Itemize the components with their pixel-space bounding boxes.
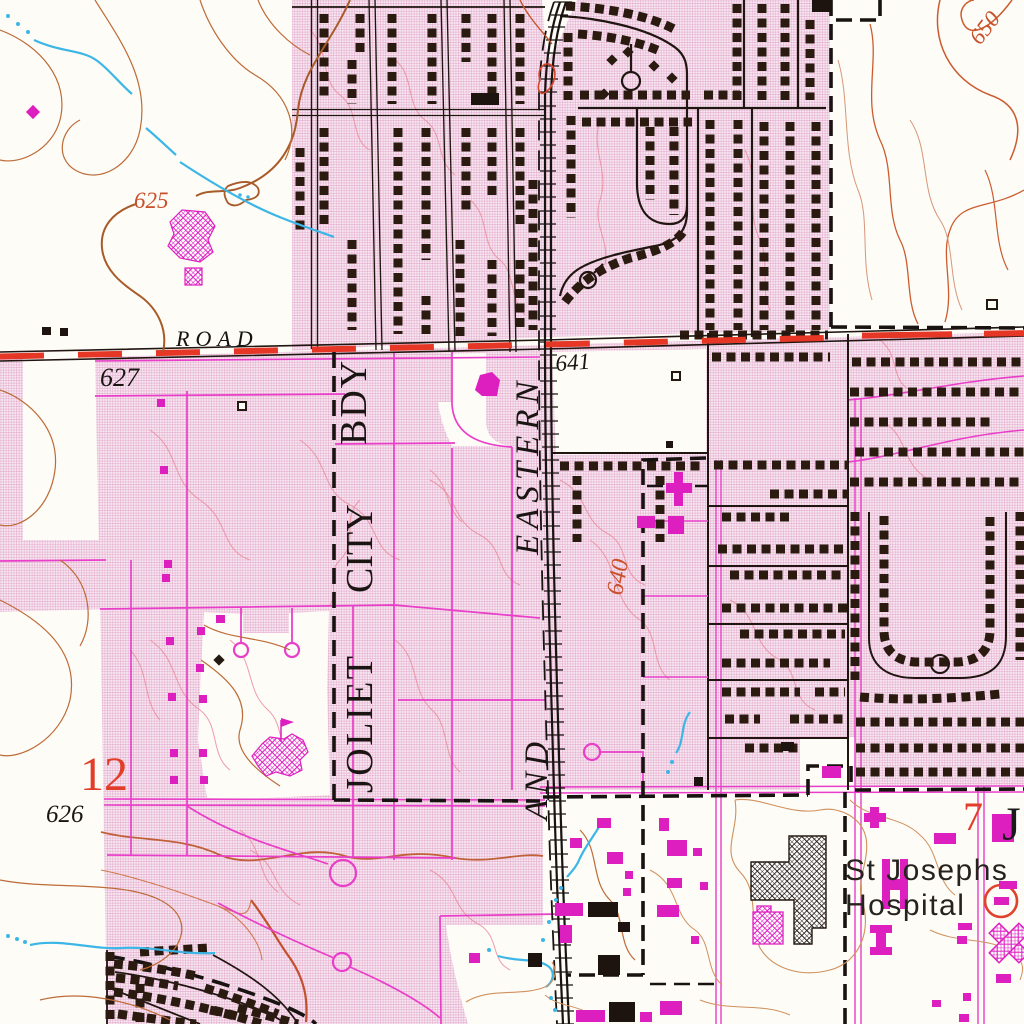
svg-text:ROAD: ROAD bbox=[175, 326, 259, 351]
svg-text:7: 7 bbox=[963, 794, 983, 839]
svg-text:Hospital: Hospital bbox=[845, 889, 965, 922]
svg-text:626: 626 bbox=[46, 801, 84, 828]
svg-text:641: 641 bbox=[555, 349, 591, 376]
svg-text:BDY: BDY bbox=[333, 359, 375, 445]
svg-text:627: 627 bbox=[100, 363, 140, 392]
svg-text:St Josephs: St Josephs bbox=[845, 854, 1008, 887]
svg-text:AND: AND bbox=[519, 736, 555, 822]
svg-text:625: 625 bbox=[134, 188, 169, 213]
svg-text:12: 12 bbox=[80, 748, 128, 801]
svg-text:JOLIET: JOLIET bbox=[339, 653, 381, 793]
svg-text:CITY: CITY bbox=[339, 504, 381, 593]
svg-text:J: J bbox=[1002, 798, 1021, 851]
svg-text:EASTERN: EASTERN bbox=[510, 376, 546, 557]
